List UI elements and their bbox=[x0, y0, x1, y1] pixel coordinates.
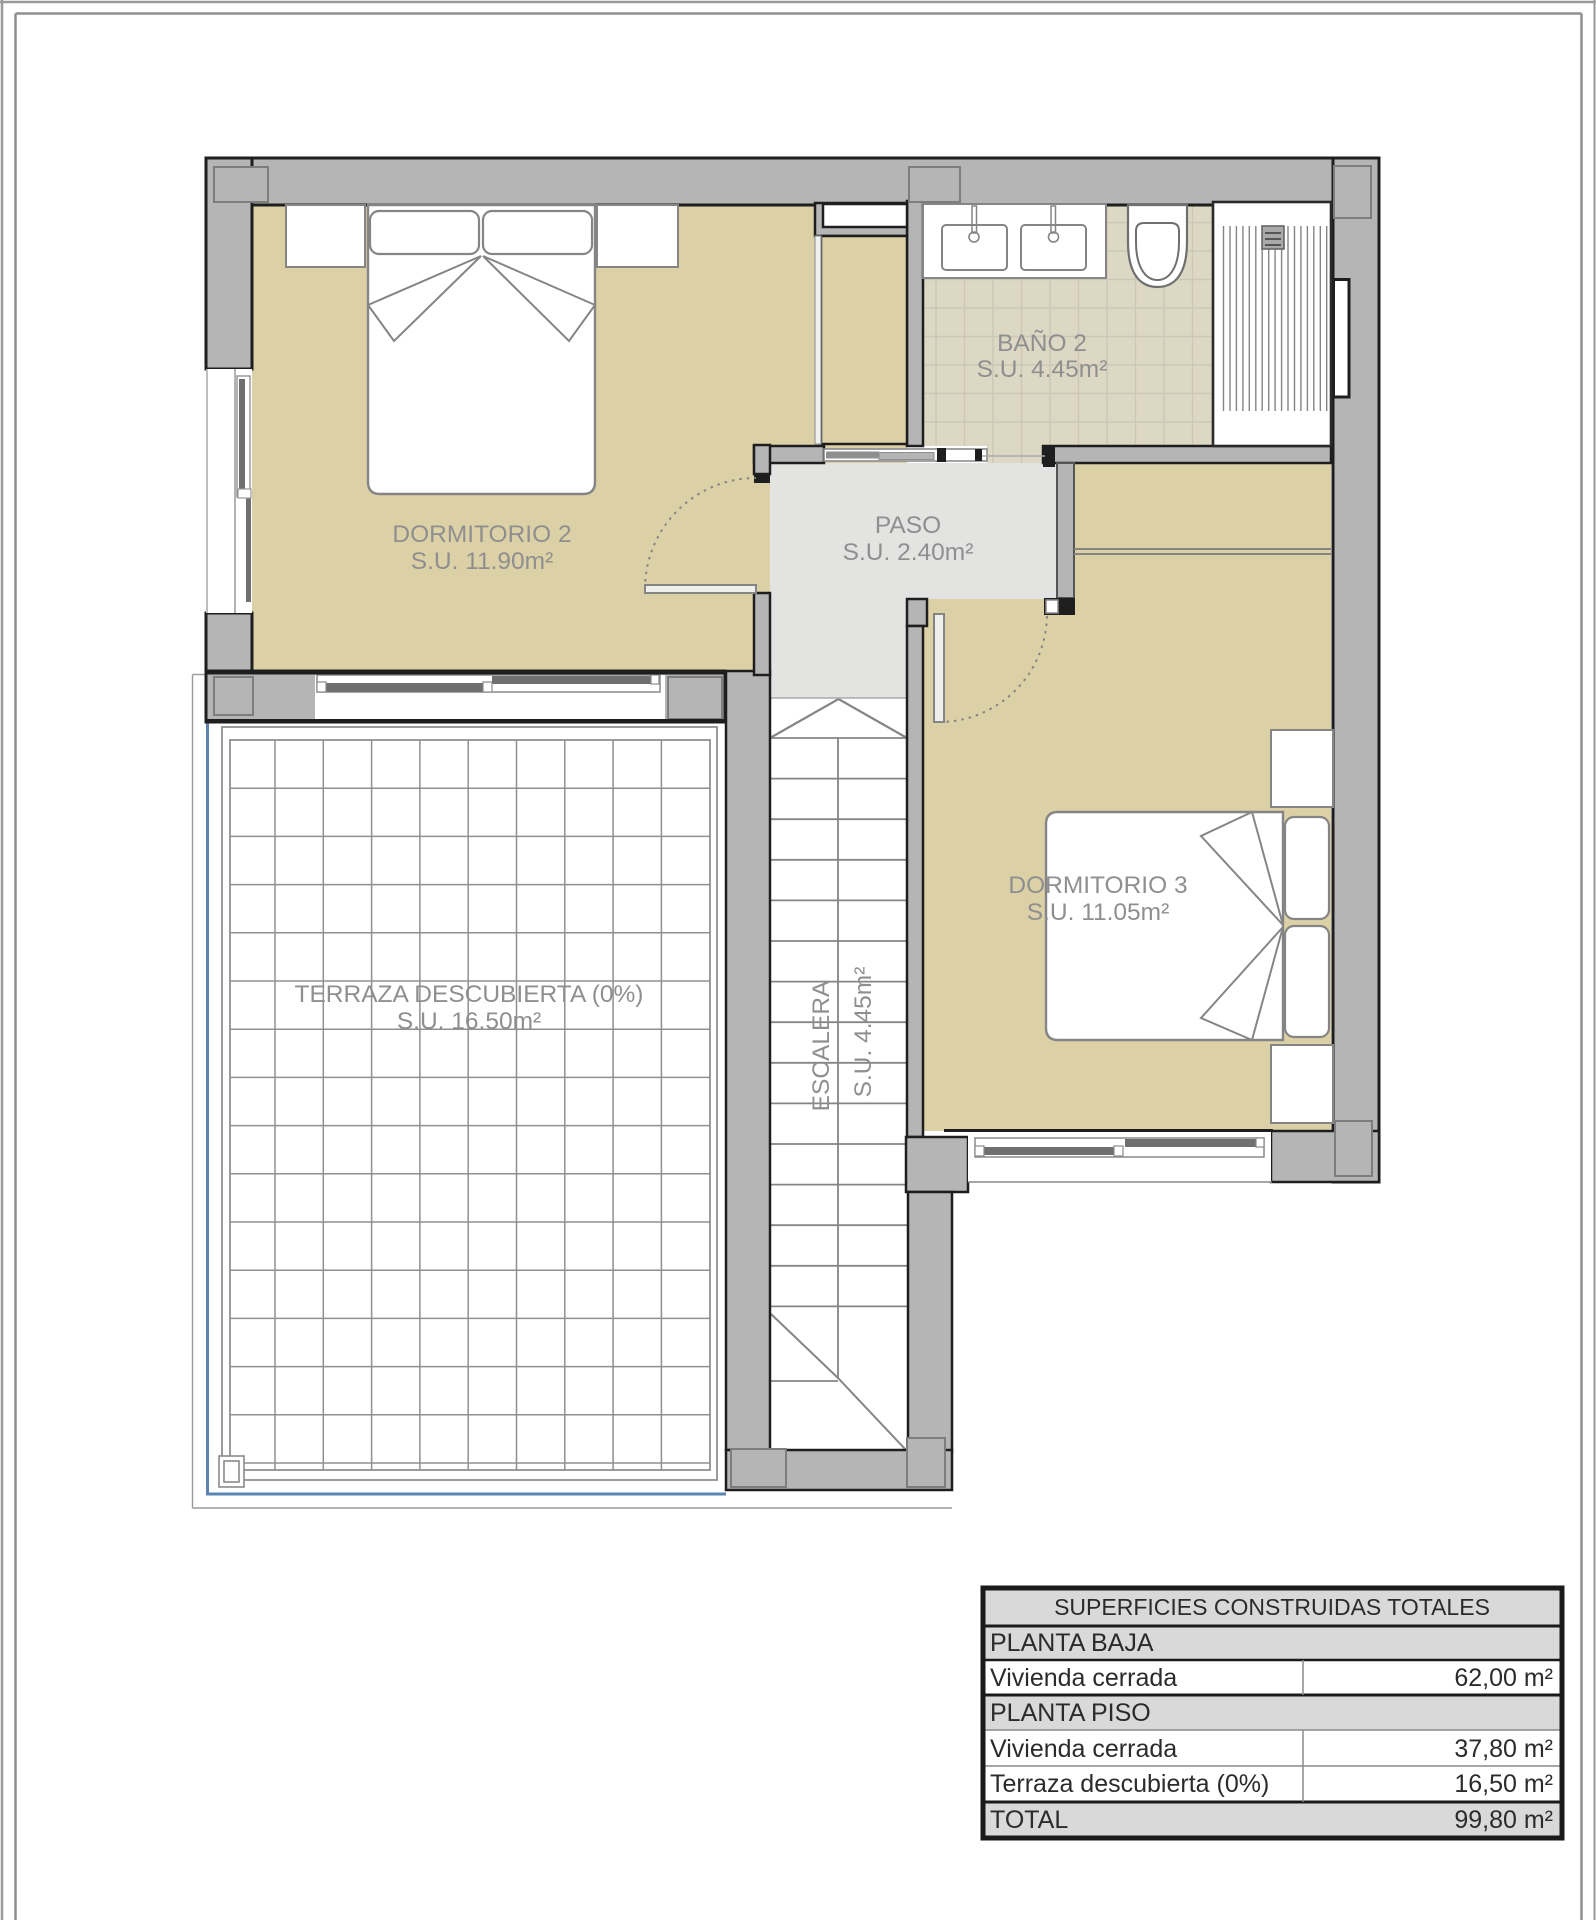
svg-text:37,80 m²: 37,80 m² bbox=[1454, 1735, 1553, 1763]
svg-text:PLANTA BAJA: PLANTA BAJA bbox=[990, 1629, 1154, 1657]
svg-text:62,00 m²: 62,00 m² bbox=[1454, 1664, 1553, 1692]
svg-text:PLANTA PISO: PLANTA PISO bbox=[990, 1699, 1151, 1727]
svg-text:S.U. 11.05m²: S.U. 11.05m² bbox=[1027, 899, 1170, 926]
svg-text:99,80 m²: 99,80 m² bbox=[1454, 1806, 1553, 1834]
svg-text:PASO: PASO bbox=[875, 512, 941, 539]
svg-text:SUPERFICIES CONSTRUIDAS TOTALE: SUPERFICIES CONSTRUIDAS TOTALES bbox=[1054, 1594, 1490, 1620]
svg-text:ESCALERA: ESCALERA bbox=[808, 980, 835, 1111]
svg-text:Terraza descubierta (0%): Terraza descubierta (0%) bbox=[990, 1770, 1269, 1798]
svg-text:S.U. 16.50m²: S.U. 16.50m² bbox=[397, 1008, 541, 1035]
svg-text:16,50 m²: 16,50 m² bbox=[1454, 1770, 1553, 1798]
svg-text:S.U. 4.45m²: S.U. 4.45m² bbox=[977, 356, 1108, 383]
svg-text:TERRAZA DESCUBIERTA (0%): TERRAZA DESCUBIERTA (0%) bbox=[295, 981, 644, 1008]
svg-text:DORMITORIO 2: DORMITORIO 2 bbox=[392, 521, 571, 548]
svg-text:DORMITORIO 3: DORMITORIO 3 bbox=[1008, 872, 1187, 899]
svg-text:BAÑO 2: BAÑO 2 bbox=[997, 330, 1087, 357]
svg-text:S.U. 4.45m²: S.U. 4.45m² bbox=[850, 967, 877, 1098]
svg-text:Vivienda cerrada: Vivienda cerrada bbox=[990, 1664, 1177, 1692]
svg-text:S.U. 2.40m²: S.U. 2.40m² bbox=[843, 539, 974, 566]
svg-text:S.U. 11.90m²: S.U. 11.90m² bbox=[411, 548, 554, 575]
svg-text:TOTAL: TOTAL bbox=[990, 1806, 1068, 1834]
svg-text:Vivienda cerrada: Vivienda cerrada bbox=[990, 1735, 1177, 1763]
